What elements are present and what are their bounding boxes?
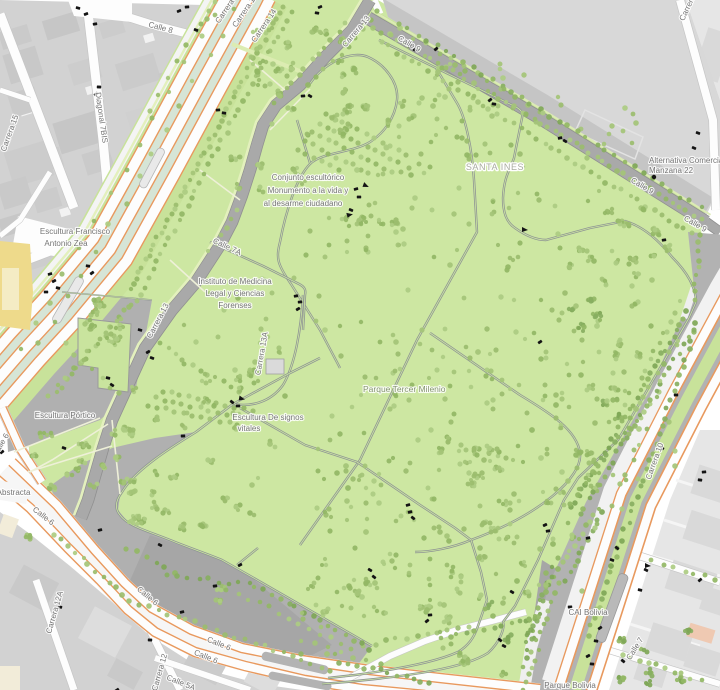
svg-text:Forenses: Forenses <box>218 301 251 310</box>
svg-text:Parque Tercer Milenio: Parque Tercer Milenio <box>363 384 446 394</box>
svg-text:Escultura Abstracta: Escultura Abstracta <box>0 488 31 497</box>
svg-text:Alternativa Comercial: Alternativa Comercial <box>649 156 720 165</box>
svg-text:Monumento a la vida y: Monumento a la vida y <box>268 186 349 195</box>
svg-text:Escultura Pórtico: Escultura Pórtico <box>35 411 96 420</box>
svg-text:Escultura De signos: Escultura De signos <box>232 413 303 422</box>
svg-text:Instituto de Medicina: Instituto de Medicina <box>198 277 272 286</box>
svg-text:SANTA INES: SANTA INES <box>466 162 524 172</box>
svg-text:CAI Bolivia: CAI Bolivia <box>568 608 608 617</box>
svg-text:Conjunto escultórico: Conjunto escultórico <box>272 173 345 182</box>
svg-text:Manzana 22: Manzana 22 <box>649 166 694 175</box>
svg-text:Parque Bolivia: Parque Bolivia <box>544 681 596 690</box>
svg-text:al desarme ciudadano: al desarme ciudadano <box>264 199 343 208</box>
svg-text:vitales: vitales <box>238 424 261 433</box>
svg-text:Legal y Ciencias: Legal y Ciencias <box>206 289 265 298</box>
svg-text:Antonio Zea: Antonio Zea <box>44 239 88 248</box>
svg-text:Escultura Francisco: Escultura Francisco <box>40 227 111 236</box>
